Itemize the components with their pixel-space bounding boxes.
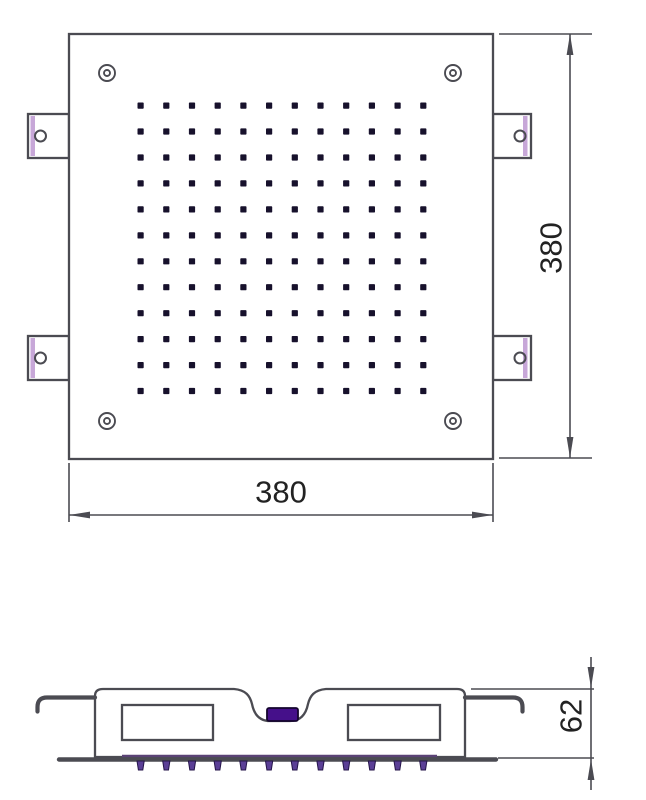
arrowhead-right xyxy=(472,512,493,519)
nozzle-dot xyxy=(420,180,426,186)
nozzle-dot xyxy=(369,258,375,264)
nozzle-dot xyxy=(317,258,323,264)
nozzle-dot xyxy=(266,362,272,368)
nozzle-dot xyxy=(395,388,401,394)
nozzle-dot xyxy=(138,128,144,134)
nozzle-dot xyxy=(369,336,375,342)
nozzle-dot xyxy=(266,388,272,394)
nozzle-dot xyxy=(189,128,195,134)
nozzle-teeth xyxy=(137,761,427,770)
nozzle-dot xyxy=(343,336,349,342)
nozzle-dot xyxy=(395,336,401,342)
nozzle-dot xyxy=(343,128,349,134)
nozzle-dot xyxy=(240,284,246,290)
arrowhead-down xyxy=(567,437,574,458)
nozzle-dot xyxy=(343,154,349,160)
nozzle-dot xyxy=(395,232,401,238)
nozzle-dot xyxy=(395,310,401,316)
mounting-hook-right xyxy=(465,698,523,712)
nozzle-tooth xyxy=(291,761,298,770)
nozzle-dot xyxy=(163,336,169,342)
nozzle-dot xyxy=(240,362,246,368)
nozzle-dot xyxy=(395,154,401,160)
nozzle-dot xyxy=(163,388,169,394)
nozzle-dot xyxy=(138,336,144,342)
dim-depth: 62 xyxy=(471,657,594,790)
nozzle-dot xyxy=(395,103,401,109)
nozzle-dot xyxy=(215,180,221,186)
nozzle-dot xyxy=(317,362,323,368)
nozzle-dot xyxy=(163,284,169,290)
nozzle-tooth xyxy=(214,761,221,770)
nozzle-dot xyxy=(343,362,349,368)
arrowhead-down xyxy=(588,667,595,688)
nozzle-dot xyxy=(189,206,195,212)
nozzle-dot xyxy=(266,284,272,290)
nozzle-dot xyxy=(138,388,144,394)
nozzle-dot xyxy=(240,388,246,394)
water-inlet xyxy=(267,708,298,721)
nozzle-dot xyxy=(163,362,169,368)
nozzle-dot xyxy=(420,310,426,316)
nozzle-dot xyxy=(395,258,401,264)
nozzle-dot xyxy=(189,232,195,238)
top-view: 380 380 xyxy=(28,34,592,522)
nozzle-dot xyxy=(369,362,375,368)
nozzle-dot xyxy=(138,154,144,160)
nozzle-dot xyxy=(138,103,144,109)
arrowhead-left xyxy=(69,512,90,519)
nozzle-dot xyxy=(266,258,272,264)
nozzle-tooth xyxy=(368,761,375,770)
nozzle-dot xyxy=(420,362,426,368)
nozzle-dot xyxy=(163,103,169,109)
nozzle-dot xyxy=(266,103,272,109)
arrowhead-up xyxy=(588,759,595,780)
nozzle-dot xyxy=(138,284,144,290)
nozzle-dot xyxy=(138,258,144,264)
nozzle-dot xyxy=(317,103,323,109)
nozzle-dot xyxy=(215,128,221,134)
nozzle-dot xyxy=(215,154,221,160)
nozzle-dot xyxy=(369,180,375,186)
nozzle-dot xyxy=(292,388,298,394)
nozzle-dot xyxy=(189,310,195,316)
nozzle-dot xyxy=(266,180,272,186)
nozzle-dot xyxy=(292,154,298,160)
nozzle-dot xyxy=(369,310,375,316)
nozzle-dot xyxy=(317,336,323,342)
nozzle-dot xyxy=(369,103,375,109)
nozzle-tooth xyxy=(343,761,350,770)
nozzle-dot xyxy=(292,336,298,342)
nozzle-dot xyxy=(343,258,349,264)
nozzle-dot xyxy=(369,154,375,160)
nozzle-dot xyxy=(215,362,221,368)
nozzle-dot xyxy=(292,180,298,186)
dim-height-label: 380 xyxy=(534,222,569,274)
nozzle-dot xyxy=(292,128,298,134)
nozzle-dot xyxy=(240,206,246,212)
nozzle-dot xyxy=(343,180,349,186)
dim-width: 380 xyxy=(69,463,493,522)
nozzle-dot xyxy=(369,284,375,290)
nozzle-dot xyxy=(240,258,246,264)
nozzle-dot xyxy=(420,154,426,160)
nozzle-dot xyxy=(240,103,246,109)
nozzle-dot xyxy=(343,103,349,109)
mounting-tab-top-right xyxy=(493,114,531,158)
nozzle-tooth xyxy=(394,761,401,770)
nozzle-dot xyxy=(189,388,195,394)
nozzle-dot xyxy=(189,362,195,368)
nozzle-dot xyxy=(240,336,246,342)
nozzle-dot xyxy=(292,284,298,290)
nozzle-dot xyxy=(420,128,426,134)
nozzle-dot xyxy=(163,128,169,134)
shower-head-drawing: 380 380 xyxy=(0,0,646,800)
nozzle-dot xyxy=(189,258,195,264)
nozzle-dot xyxy=(420,336,426,342)
nozzle-dot xyxy=(266,336,272,342)
nozzle-dot xyxy=(266,128,272,134)
nozzle-dot xyxy=(369,206,375,212)
nozzle-dot xyxy=(292,206,298,212)
nozzle-dot xyxy=(292,310,298,316)
dim-width-label: 380 xyxy=(255,475,307,510)
nozzle-dot xyxy=(240,310,246,316)
nozzle-dot xyxy=(317,180,323,186)
nozzle-tooth xyxy=(188,761,195,770)
nozzle-dot xyxy=(317,232,323,238)
nozzle-dot xyxy=(189,180,195,186)
nozzle-dot xyxy=(215,258,221,264)
nozzle-dot xyxy=(369,128,375,134)
nozzle-dot xyxy=(163,232,169,238)
nozzle-dot xyxy=(163,154,169,160)
nozzle-dot xyxy=(292,103,298,109)
nozzle-dot xyxy=(240,180,246,186)
nozzle-dot xyxy=(395,362,401,368)
mounting-tab-bottom-right xyxy=(493,336,531,380)
nozzle-dot xyxy=(215,284,221,290)
nozzle-dot xyxy=(240,128,246,134)
nozzle-dot xyxy=(215,336,221,342)
nozzle-dot xyxy=(240,232,246,238)
nozzle-dot xyxy=(266,310,272,316)
nozzle-dot xyxy=(215,232,221,238)
nozzle-tooth xyxy=(266,761,273,770)
nozzle-dot xyxy=(138,310,144,316)
nozzle-dot xyxy=(420,232,426,238)
nozzle-dot xyxy=(189,284,195,290)
nozzle-dot xyxy=(215,103,221,109)
nozzle-dot xyxy=(317,206,323,212)
nozzle-tooth xyxy=(420,761,427,770)
nozzle-dot xyxy=(266,232,272,238)
nozzle-dot xyxy=(343,388,349,394)
nozzle-dot xyxy=(163,206,169,212)
nozzle-dot xyxy=(189,103,195,109)
nozzle-dot xyxy=(395,180,401,186)
nozzle-dot xyxy=(343,310,349,316)
nozzle-dot xyxy=(240,154,246,160)
section-view: 62 xyxy=(38,657,595,790)
nozzle-dot xyxy=(163,180,169,186)
nozzle-dot xyxy=(266,206,272,212)
nozzle-dot xyxy=(369,232,375,238)
nozzle-dot xyxy=(317,310,323,316)
dim-height: 380 xyxy=(499,34,592,458)
mounting-tab-top-left xyxy=(28,114,69,158)
nozzle-dot xyxy=(189,154,195,160)
nozzle-dot xyxy=(138,232,144,238)
nozzle-tooth xyxy=(317,761,324,770)
nozzle-dot xyxy=(343,284,349,290)
nozzle-dot xyxy=(317,154,323,160)
nozzle-tooth xyxy=(137,761,144,770)
nozzle-dot xyxy=(138,362,144,368)
nozzle-dot xyxy=(215,206,221,212)
nozzle-dot xyxy=(420,206,426,212)
nozzle-dot xyxy=(189,336,195,342)
nozzle-dot xyxy=(292,362,298,368)
plate-outline xyxy=(69,34,493,459)
dim-depth-label: 62 xyxy=(554,699,589,733)
nozzle-dot xyxy=(420,284,426,290)
nozzle-dot xyxy=(395,206,401,212)
nozzle-dot xyxy=(317,284,323,290)
nozzle-dot xyxy=(343,206,349,212)
nozzle-dot xyxy=(163,310,169,316)
nozzle-dot xyxy=(420,103,426,109)
nozzle-dot xyxy=(138,206,144,212)
nozzle-dot xyxy=(266,154,272,160)
nozzle-dot xyxy=(138,180,144,186)
nozzle-dot xyxy=(215,310,221,316)
arrowhead-up xyxy=(567,34,574,55)
nozzle-dot xyxy=(420,388,426,394)
nozzle-dot xyxy=(420,258,426,264)
mounting-hook-left xyxy=(38,698,96,712)
nozzle-tooth xyxy=(240,761,247,770)
nozzle-dot xyxy=(395,284,401,290)
nozzle-dot xyxy=(343,232,349,238)
nozzle-dot xyxy=(317,128,323,134)
nozzle-dot xyxy=(292,232,298,238)
mounting-tab-bottom-left xyxy=(28,336,69,380)
nozzle-dot xyxy=(317,388,323,394)
nozzle-dot xyxy=(215,388,221,394)
drawing-canvas: 380 380 xyxy=(0,0,646,800)
body-outline xyxy=(95,689,465,757)
nozzle-dot xyxy=(292,258,298,264)
nozzle-dot xyxy=(163,258,169,264)
nozzle-tooth xyxy=(163,761,170,770)
nozzle-dot xyxy=(395,128,401,134)
nozzle-dot xyxy=(369,388,375,394)
